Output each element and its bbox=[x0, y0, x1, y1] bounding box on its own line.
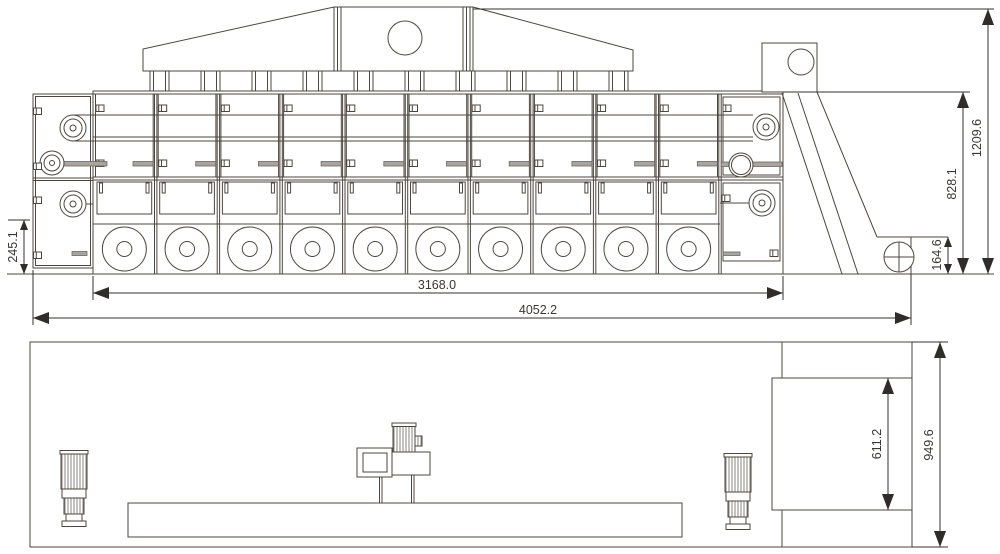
dim-body-length: 3168.0 bbox=[418, 278, 456, 292]
dryer-body bbox=[93, 91, 783, 274]
bucket-elevator bbox=[762, 43, 948, 274]
plan-view: 611.2 949.6 bbox=[30, 342, 948, 547]
side-view: 3168.0 4052.2 245.1 164.6 828.1 bbox=[6, 7, 994, 325]
technical-drawing: 3168.0 4052.2 245.1 164.6 828.1 bbox=[0, 0, 1000, 554]
belt-frame-edge bbox=[128, 503, 682, 537]
dim-inlet-height: 245.1 bbox=[6, 231, 20, 262]
duct-legs bbox=[150, 71, 628, 91]
dim-overall-height: 1209.6 bbox=[970, 119, 984, 157]
drawing-canvas: 3168.0 4052.2 245.1 164.6 828.1 bbox=[0, 0, 1000, 554]
dim-elevator-length: 611.2 bbox=[870, 429, 884, 459]
dim-body-height: 828.1 bbox=[945, 168, 959, 199]
exhaust-hood bbox=[143, 7, 633, 71]
elevator-footprint bbox=[772, 378, 912, 510]
elevator-head-pulley bbox=[788, 49, 814, 75]
dim-overall-length: 4052.2 bbox=[519, 303, 557, 317]
center-motor bbox=[393, 424, 415, 452]
dim-overall-width: 949.6 bbox=[922, 429, 936, 460]
dim-discharge-height: 164.6 bbox=[930, 239, 944, 270]
